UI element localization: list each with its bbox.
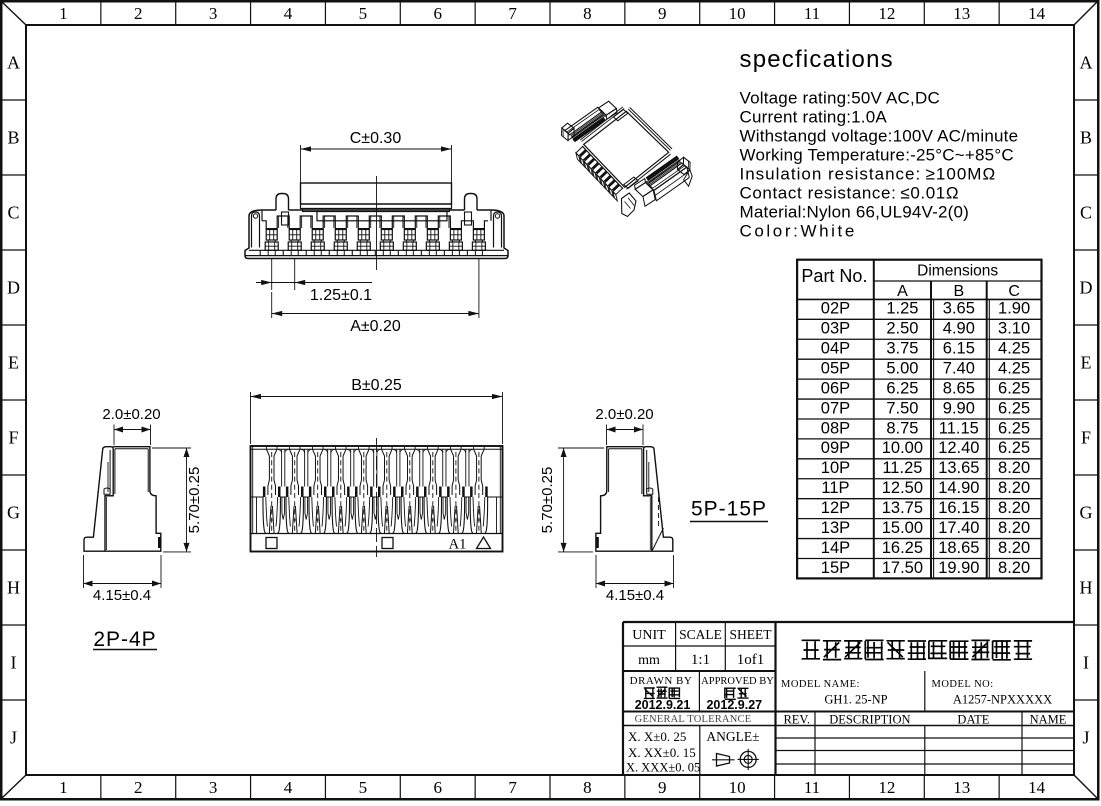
svg-text:specfications: specfications	[740, 46, 894, 73]
svg-text:X. XXX±0. 05: X. XXX±0. 05	[626, 761, 700, 775]
svg-text:4.25: 4.25	[998, 360, 1030, 378]
svg-text:A: A	[1080, 53, 1093, 73]
svg-text:Current rating:1.0A: Current rating:1.0A	[740, 108, 888, 127]
svg-text:Voltage rating:50V AC,DC: Voltage rating:50V AC,DC	[740, 89, 940, 108]
svg-text:B±0.25: B±0.25	[351, 377, 402, 394]
svg-text:13: 13	[953, 4, 970, 23]
svg-text:13P: 13P	[821, 519, 850, 537]
svg-text:D: D	[1080, 278, 1093, 298]
svg-text:3.75: 3.75	[886, 340, 918, 358]
svg-text:12.40: 12.40	[938, 439, 979, 457]
svg-text:A±0.20: A±0.20	[350, 318, 401, 335]
svg-text:5.00: 5.00	[886, 360, 918, 378]
svg-text:H: H	[1080, 578, 1093, 598]
svg-text:5.70±0.25: 5.70±0.25	[186, 467, 203, 534]
svg-text:14: 14	[1028, 4, 1046, 23]
svg-text:SHEET: SHEET	[730, 627, 773, 642]
svg-text:8.20: 8.20	[998, 499, 1030, 517]
svg-text:C: C	[1080, 203, 1092, 223]
svg-text:2P-4P: 2P-4P	[93, 628, 156, 651]
svg-text:6.25: 6.25	[998, 439, 1030, 457]
svg-text:13: 13	[953, 778, 970, 797]
svg-text:UNIT: UNIT	[632, 628, 666, 643]
svg-text:A: A	[7, 53, 20, 73]
svg-text:8.20: 8.20	[998, 539, 1030, 557]
svg-text:Working Temperature:-25°C~+85: Working Temperature:-25°C~+85°C	[740, 146, 1014, 165]
svg-text:1.90: 1.90	[998, 300, 1030, 318]
svg-text:6: 6	[433, 778, 442, 797]
svg-text:10P: 10P	[821, 459, 850, 477]
svg-text:9: 9	[658, 778, 667, 797]
svg-text:07P: 07P	[821, 399, 850, 417]
svg-text:11: 11	[804, 4, 820, 23]
svg-text:5P-15P: 5P-15P	[691, 498, 767, 521]
svg-text:A: A	[897, 283, 908, 300]
svg-text:2.0±0.20: 2.0±0.20	[102, 406, 160, 423]
svg-text:3: 3	[209, 4, 218, 23]
svg-text:Material:Nylon 66,UL94V-2(0): Material:Nylon 66,UL94V-2(0)	[740, 203, 970, 222]
svg-text:17.40: 17.40	[938, 519, 979, 537]
svg-text:DRAWN BY: DRAWN BY	[630, 675, 693, 687]
svg-text:9: 9	[658, 4, 667, 23]
svg-text:03P: 03P	[821, 320, 850, 338]
svg-text:I: I	[1083, 653, 1089, 673]
svg-text:G: G	[1080, 503, 1093, 523]
svg-text:4.15±0.4: 4.15±0.4	[93, 587, 151, 604]
svg-text:18.65: 18.65	[938, 539, 979, 557]
svg-text:C±0.30: C±0.30	[350, 130, 402, 147]
svg-text:7.50: 7.50	[886, 399, 918, 417]
svg-text:12.50: 12.50	[882, 479, 923, 497]
svg-text:06P: 06P	[821, 379, 850, 397]
svg-text:J: J	[1082, 728, 1089, 748]
svg-text:5: 5	[359, 4, 368, 23]
svg-text:1:1: 1:1	[691, 652, 710, 668]
svg-text:4: 4	[284, 4, 293, 23]
svg-text:REV.: REV.	[783, 713, 810, 727]
svg-text:8.20: 8.20	[998, 519, 1030, 537]
svg-text:G: G	[7, 503, 20, 523]
svg-text:3.10: 3.10	[998, 320, 1030, 338]
svg-text:4: 4	[284, 778, 293, 797]
svg-text:F: F	[1081, 428, 1091, 448]
svg-text:Contact resistance: ≤0.01Ω: Contact resistance: ≤0.01Ω	[740, 184, 960, 203]
svg-text:2012.9.27: 2012.9.27	[706, 698, 762, 712]
svg-text:8.20: 8.20	[998, 559, 1030, 577]
svg-text:1.25: 1.25	[886, 300, 918, 318]
svg-text:1of1: 1of1	[737, 652, 765, 668]
svg-text:14.90: 14.90	[938, 479, 979, 497]
svg-text:5.70±0.25: 5.70±0.25	[539, 467, 556, 534]
svg-text:2: 2	[134, 4, 143, 23]
svg-text:2: 2	[134, 778, 143, 797]
svg-text:12: 12	[878, 778, 895, 797]
svg-text:E: E	[8, 353, 19, 373]
svg-text:11P: 11P	[821, 479, 849, 497]
svg-text:J: J	[10, 728, 17, 748]
svg-text:13.65: 13.65	[938, 459, 979, 477]
svg-text:02P: 02P	[821, 300, 850, 318]
svg-text:3.65: 3.65	[943, 300, 975, 318]
svg-text:A1: A1	[449, 537, 467, 553]
svg-text:10.00: 10.00	[882, 439, 923, 457]
svg-text:MODEL NAME:: MODEL NAME:	[781, 679, 860, 690]
svg-text:11: 11	[804, 778, 820, 797]
svg-text:7: 7	[508, 4, 517, 23]
svg-text:09P: 09P	[821, 439, 850, 457]
svg-text:12: 12	[878, 4, 895, 23]
svg-text:8.75: 8.75	[886, 419, 918, 437]
svg-text:Insulation resistance: ≥100MΩ: Insulation resistance: ≥100MΩ	[740, 165, 997, 184]
svg-text:Color:White: Color:White	[740, 222, 857, 241]
svg-text:6.25: 6.25	[998, 379, 1030, 397]
svg-text:H: H	[7, 578, 20, 598]
svg-text:6.25: 6.25	[998, 419, 1030, 437]
svg-text:8.20: 8.20	[998, 479, 1030, 497]
svg-text:15.00: 15.00	[882, 519, 923, 537]
svg-text:6: 6	[433, 4, 442, 23]
svg-text:SCALE: SCALE	[679, 627, 722, 642]
svg-text:A1257-NPXXXXX: A1257-NPXXXXX	[953, 693, 1052, 707]
svg-text:C: C	[1008, 283, 1020, 300]
svg-text:17.50: 17.50	[882, 559, 923, 577]
svg-text:MODEL NO:: MODEL NO:	[932, 679, 994, 690]
svg-text:Part No.: Part No.	[801, 266, 867, 286]
svg-text:08P: 08P	[821, 419, 850, 437]
svg-text:6.15: 6.15	[943, 340, 975, 358]
svg-text:9.90: 9.90	[943, 399, 975, 417]
svg-text:7.40: 7.40	[943, 360, 975, 378]
svg-text:NAME: NAME	[1030, 713, 1067, 727]
svg-text:16.15: 16.15	[938, 499, 979, 517]
svg-text:19.90: 19.90	[938, 559, 979, 577]
svg-text:GENERAL TOLERANCE: GENERAL TOLERANCE	[635, 714, 752, 725]
svg-text:4.90: 4.90	[943, 320, 975, 338]
svg-text:8.20: 8.20	[998, 459, 1030, 477]
svg-text:DESCRIPTION: DESCRIPTION	[829, 713, 910, 727]
svg-text:DATE: DATE	[957, 713, 989, 727]
svg-text:7: 7	[508, 778, 517, 797]
svg-text:5: 5	[359, 778, 368, 797]
svg-text:10: 10	[729, 4, 746, 23]
svg-text:2012.9.21: 2012.9.21	[635, 698, 691, 712]
svg-text:4.15±0.4: 4.15±0.4	[606, 587, 664, 604]
svg-text:14: 14	[1028, 778, 1046, 797]
svg-text:8.65: 8.65	[943, 379, 975, 397]
svg-text:1: 1	[59, 778, 68, 797]
svg-text:05P: 05P	[821, 360, 850, 378]
svg-text:13.75: 13.75	[882, 499, 923, 517]
svg-text:2.50: 2.50	[886, 320, 918, 338]
svg-text:4.25: 4.25	[998, 340, 1030, 358]
svg-text:ANGLE±: ANGLE±	[706, 729, 759, 744]
svg-text:14P: 14P	[821, 539, 850, 557]
svg-text:8: 8	[583, 778, 592, 797]
svg-text:Dimensions: Dimensions	[917, 263, 998, 280]
svg-text:mm: mm	[638, 653, 660, 668]
svg-text:04P: 04P	[821, 340, 850, 358]
svg-text:1: 1	[59, 4, 68, 23]
svg-text:11.15: 11.15	[939, 419, 979, 437]
svg-text:X. X±0. 25: X. X±0. 25	[628, 729, 686, 744]
svg-text:6.25: 6.25	[998, 399, 1030, 417]
svg-text:C: C	[7, 203, 19, 223]
svg-text:12P: 12P	[821, 499, 850, 517]
svg-text:E: E	[1081, 353, 1092, 373]
svg-text:GH1. 25-NP: GH1. 25-NP	[824, 693, 887, 707]
svg-text:I: I	[11, 653, 17, 673]
svg-text:10: 10	[729, 778, 746, 797]
svg-text:2.0±0.20: 2.0±0.20	[595, 406, 653, 423]
svg-text:X. XX±0. 15: X. XX±0. 15	[628, 745, 696, 760]
svg-text:8: 8	[583, 4, 592, 23]
svg-text:B: B	[7, 128, 19, 148]
svg-text:APPROVED BY: APPROVED BY	[701, 676, 774, 687]
svg-text:3: 3	[209, 778, 218, 797]
svg-text:B: B	[954, 283, 965, 300]
svg-text:6.25: 6.25	[886, 379, 918, 397]
svg-text:B: B	[1080, 128, 1092, 148]
svg-text:16.25: 16.25	[882, 539, 923, 557]
svg-text:11.25: 11.25	[882, 459, 922, 477]
svg-text:Withstangd voltage:100V AC/m: Withstangd voltage:100V AC/minute	[740, 127, 1019, 146]
svg-text:F: F	[8, 428, 18, 448]
svg-text:1.25±0.1: 1.25±0.1	[310, 287, 372, 304]
svg-text:15P: 15P	[821, 559, 850, 577]
svg-text:D: D	[7, 278, 20, 298]
